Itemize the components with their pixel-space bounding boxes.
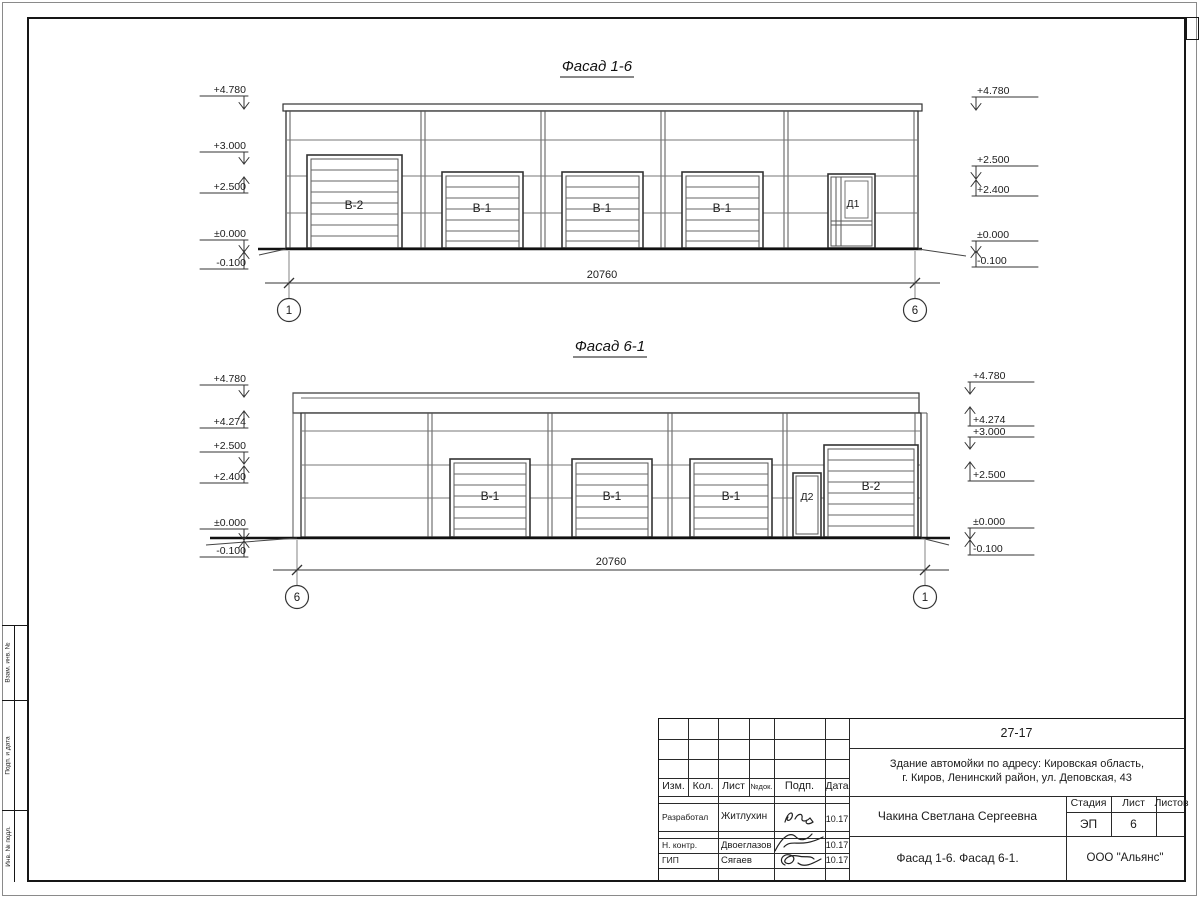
svg-text:+3.000: +3.000 — [214, 140, 247, 152]
door-label: В-1 — [603, 489, 622, 503]
svg-text:+4.274: +4.274 — [214, 416, 247, 428]
parapet-band — [293, 393, 919, 413]
door-v2: В-2 — [307, 155, 402, 248]
door-label: В-1 — [593, 201, 612, 215]
parapet-band — [283, 104, 922, 111]
door-d2: Д2 — [793, 473, 821, 537]
svg-text:+4.274: +4.274 — [973, 414, 1006, 426]
sheets-total — [1156, 812, 1187, 836]
svg-text:+2.500: +2.500 — [214, 181, 247, 193]
elevation-mark: ±0.000 — [200, 517, 249, 540]
svg-text:+2.400: +2.400 — [214, 471, 247, 483]
row-developer-role: Разработал — [662, 803, 718, 831]
door-label: В-2 — [345, 198, 364, 212]
project-code: 27-17 — [849, 719, 1184, 748]
elevation-mark: +4.780 — [971, 85, 1038, 110]
axis-bubble-left: 1 — [278, 299, 301, 322]
elevation-mark: -0.100 — [965, 540, 1034, 555]
axis-number: 6 — [294, 592, 300, 604]
object-address-line1: Здание автомойки по адресу: Кировская об… — [890, 758, 1144, 772]
row-developer-name: Житлухин — [721, 803, 774, 831]
elevation-mark: +2.500 — [200, 440, 249, 464]
door-label: В-2 — [862, 479, 881, 493]
facade-1-6: Фасад 1-6 В-2 В-1 — [200, 58, 1038, 322]
drawing-name: Фасад 1-6. Фасад 6-1. — [849, 836, 1066, 880]
row-gip-role: ГИП — [662, 853, 718, 868]
axis-bubble-left: 6 — [286, 586, 309, 609]
door-v1: В-1 — [562, 172, 643, 248]
elevation-mark: +4.274 — [965, 407, 1034, 426]
door-v2: В-2 — [824, 445, 918, 537]
stage-value: ЭП — [1066, 812, 1111, 836]
company-name: ООО "Альянс" — [1066, 836, 1184, 880]
svg-text:-0.100: -0.100 — [216, 545, 246, 557]
title-block: Изм. Кол. Лист №док. Подп. Дата Разработ… — [658, 718, 1186, 882]
elevation-mark: +4.780 — [200, 373, 249, 397]
elevation-mark: +3.000 — [965, 426, 1034, 449]
row-normcontrol-role: Н. контр. — [662, 838, 718, 853]
designer-name: Чакина Светлана Сергеевна — [849, 796, 1066, 836]
object-address-line2: г. Киров, Ленинский район, ул. Деповская… — [902, 772, 1132, 786]
col-header-podp: Подп. — [774, 778, 825, 796]
object-address: Здание автомойки по адресу: Кировская об… — [854, 748, 1180, 796]
signature-developer — [777, 807, 823, 829]
axis-number: 1 — [922, 592, 928, 604]
svg-text:+4.780: +4.780 — [214, 84, 247, 96]
row-developer-date: 10.17 — [825, 809, 849, 831]
elevation-mark: ±0.000 — [200, 228, 249, 252]
door-d1: Д1 — [828, 174, 875, 248]
svg-text:±0.000: ±0.000 — [214, 228, 246, 240]
svg-text:+3.000: +3.000 — [973, 426, 1006, 438]
sheet-label: Лист — [1111, 796, 1156, 812]
row-normcontrol-date: 10.17 — [825, 838, 849, 853]
svg-text:+4.780: +4.780 — [973, 370, 1006, 382]
elevation-mark: ±0.000 — [971, 229, 1038, 253]
col-header-data: Дата — [825, 778, 849, 796]
sheet-number: 6 — [1111, 812, 1156, 836]
door-label: В-1 — [481, 489, 500, 503]
elevation-mark: +4.274 — [200, 411, 249, 428]
door-v1: В-1 — [690, 459, 772, 537]
dimension-value: 20760 — [596, 556, 627, 568]
facade-1-6-title: Фасад 1-6 — [562, 58, 633, 75]
svg-text:-0.100: -0.100 — [216, 257, 246, 269]
door-label: Д2 — [801, 491, 814, 503]
elevation-marks-left: +4.780 +4.274 +2.500 +2.400 ±0.000 -0.10… — [200, 373, 249, 557]
elevation-marks-right: +4.780 +4.274 +3.000 +2.500 ±0.000 -0.10… — [965, 370, 1034, 555]
col-header-kol: Кол. — [688, 778, 718, 796]
axis-number: 1 — [286, 305, 292, 317]
dimension-line: 20760 — [265, 251, 940, 299]
elevation-mark: +2.500 — [200, 177, 249, 193]
door-label: В-1 — [473, 201, 492, 215]
door-label: В-1 — [722, 489, 741, 503]
elevation-mark: +2.500 — [965, 462, 1034, 481]
elevation-mark: ±0.000 — [965, 516, 1034, 539]
door-v1: В-1 — [450, 459, 530, 537]
door-v1: В-1 — [442, 172, 523, 248]
svg-text:-0.100: -0.100 — [973, 543, 1003, 555]
elevation-mark: +2.400 — [200, 466, 249, 483]
elevation-mark: +2.500 — [971, 154, 1038, 179]
elevation-mark: +2.400 — [971, 180, 1038, 196]
axis-number: 6 — [912, 305, 918, 317]
svg-text:±0.000: ±0.000 — [214, 517, 246, 529]
door-v1: В-1 — [572, 459, 652, 537]
row-normcontrol-name: Двоеглазов — [721, 838, 774, 853]
elevation-marks-right: +4.780 +2.500 +2.400 ±0.000 -0.100 — [971, 85, 1038, 267]
svg-text:+2.500: +2.500 — [973, 469, 1006, 481]
elevation-mark: -0.100 — [971, 251, 1038, 267]
elevation-mark: -0.100 — [200, 252, 249, 269]
svg-text:+2.500: +2.500 — [214, 440, 247, 452]
axis-bubble-right: 1 — [914, 586, 937, 609]
elevation-mark: +3.000 — [200, 140, 249, 164]
svg-text:±0.000: ±0.000 — [973, 516, 1005, 528]
col-header-izm: Изм. — [659, 778, 688, 796]
svg-text:±0.000: ±0.000 — [977, 229, 1009, 241]
facade-6-1: Фасад 6-1 В-1 В-1 — [200, 338, 1034, 609]
svg-text:-0.100: -0.100 — [977, 255, 1007, 267]
door-label: В-1 — [713, 201, 732, 215]
dimension-line: 20760 — [273, 540, 949, 586]
svg-text:+2.500: +2.500 — [977, 154, 1010, 166]
elevation-mark: +4.780 — [200, 84, 249, 109]
elevation-marks-left: +4.780 +3.000 +2.500 ±0.000 -0.100 — [200, 84, 249, 269]
svg-text:+4.780: +4.780 — [214, 373, 247, 385]
door-v1: В-1 — [682, 172, 763, 248]
dimension-value: 20760 — [587, 269, 618, 281]
drawing-sheet: Взам. инв. № Подп. и дата Инв. № подл. Ф… — [0, 0, 1200, 900]
sheets-label: Листов — [1156, 796, 1187, 812]
elevation-mark: +4.780 — [965, 370, 1034, 394]
row-gip-name: Сягаев — [721, 853, 774, 868]
row-gip-date: 10.17 — [825, 853, 849, 868]
signature-gip — [773, 850, 825, 870]
svg-text:+4.780: +4.780 — [977, 85, 1010, 97]
door-label: Д1 — [847, 198, 860, 210]
facade-6-1-title: Фасад 6-1 — [575, 338, 645, 355]
svg-text:+2.400: +2.400 — [977, 184, 1010, 196]
axis-bubble-right: 6 — [904, 299, 927, 322]
stage-label: Стадия — [1066, 796, 1111, 812]
col-header-list: Лист — [718, 778, 749, 796]
col-header-ndok: №док. — [749, 778, 774, 796]
